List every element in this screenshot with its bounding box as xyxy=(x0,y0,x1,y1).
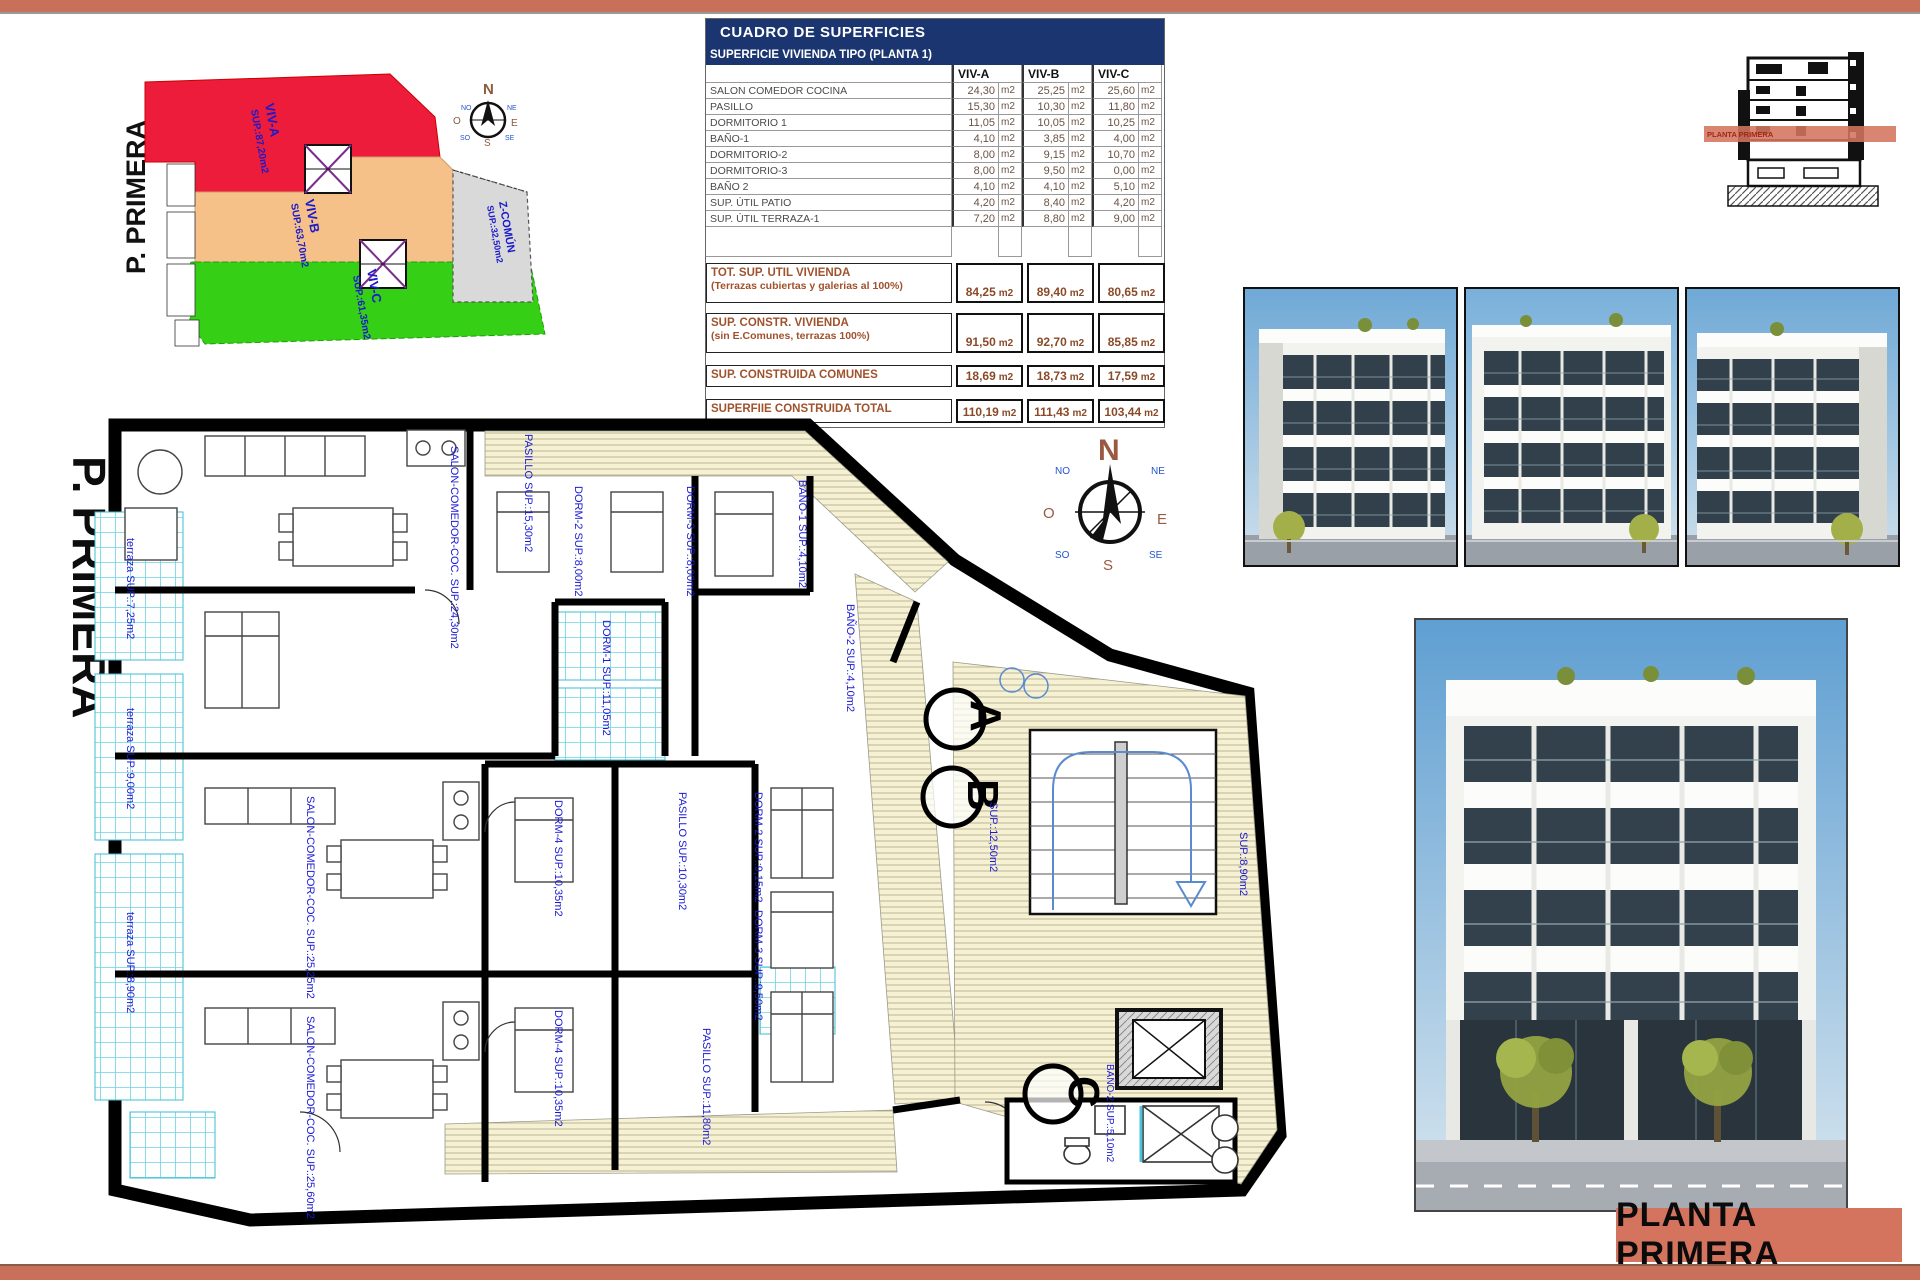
cell-value: 11,05 xyxy=(952,115,999,131)
key-compass-n: N xyxy=(483,81,494,98)
cell-value: 4,00 xyxy=(1092,131,1139,147)
cell-value: 11,80 xyxy=(1092,99,1139,115)
section-marker-c: C xyxy=(1059,1076,1108,1108)
key-compass-so: SO xyxy=(460,135,471,142)
cell-value: 8,40 xyxy=(1022,195,1069,211)
row-label: DORMITORIO-2 xyxy=(706,147,952,163)
elevator xyxy=(1117,1010,1221,1088)
summary-value: 18,69m2 xyxy=(956,365,1023,387)
cell-value: 4,10 xyxy=(952,179,999,195)
summary-value: 80,65m2 xyxy=(1098,263,1165,303)
room-label: BAÑO-1 SUP.:4,10m2 xyxy=(796,480,809,588)
cell-unit: m2 xyxy=(1069,83,1092,99)
compass-so: SO xyxy=(1055,550,1070,561)
col-viv-b: VIV-B xyxy=(1022,65,1092,83)
row-label: DORMITORIO 1 xyxy=(706,115,952,131)
cell-unit: m2 xyxy=(999,179,1022,195)
cell-unit: m2 xyxy=(999,99,1022,115)
cell-unit: m2 xyxy=(1069,99,1092,115)
key-compass-o: O xyxy=(453,116,461,127)
cell-value: 25,60 xyxy=(1092,83,1139,99)
table-title: CUADRO DE SUPERFICIES xyxy=(706,19,1164,45)
cell-value: 24,30 xyxy=(952,83,999,99)
row-label: SALON COMEDOR COCINA xyxy=(706,83,952,99)
cell-value: 15,30 xyxy=(952,99,999,115)
cell-value: 10,25 xyxy=(1092,115,1139,131)
room-label: SALON-COMEDOR-COC. SUP.:25,60m2 xyxy=(304,1016,316,1219)
bottom-accent-bar xyxy=(0,1264,1920,1280)
cell-unit: m2 xyxy=(1069,179,1092,195)
row-label: SUP. ÚTIL PATIO xyxy=(706,195,952,211)
cell-unit: m2 xyxy=(1139,163,1162,179)
compass-no: NO xyxy=(1055,466,1070,477)
summary-value: 84,25m2 xyxy=(956,263,1023,303)
sheet-title-block: PLANTA PRIMERA xyxy=(1616,1208,1902,1262)
col-viv-a: VIV-A xyxy=(952,65,1022,83)
cell-unit: m2 xyxy=(999,147,1022,163)
cell-unit: m2 xyxy=(1069,131,1092,147)
summary-row: TOT. SUP. UTIL VIVIENDA (Terrazas cubier… xyxy=(706,263,1164,303)
cell-unit: m2 xyxy=(1139,147,1162,163)
room-label: SUP.:12,50m2 xyxy=(987,802,999,872)
section-band-label: PLANTA PRIMERA xyxy=(1707,130,1774,139)
cell-value: 10,05 xyxy=(1022,115,1069,131)
cell-unit: m2 xyxy=(1139,83,1162,99)
cell-unit: m2 xyxy=(999,211,1022,227)
key-compass-no: NO xyxy=(461,105,472,112)
compass-e: E xyxy=(1157,511,1167,528)
table-row: SALON COMEDOR COCINA 24,30m2 25,25m2 25,… xyxy=(706,83,1164,99)
cell-value: 10,70 xyxy=(1092,147,1139,163)
key-plan-compass: N NO NE O E SO SE S xyxy=(453,81,518,149)
summary-label-main: TOT. SUP. UTIL VIVIENDA xyxy=(711,267,850,279)
summary-label-sub: (Terrazas cubiertas y galerias al 100%) xyxy=(711,280,947,293)
building-render-photo-large xyxy=(1414,618,1848,1212)
row-label: BAÑO 2 xyxy=(706,179,952,195)
summary-label: SUP. CONSTRUIDA COMUNES xyxy=(706,365,952,387)
row-label: BAÑO-1 xyxy=(706,131,952,147)
cell-value: 9,00 xyxy=(1092,211,1139,227)
table-column-header-row: VIV-A VIV-B VIV-C xyxy=(706,65,1164,83)
cell-value: 8,80 xyxy=(1022,211,1069,227)
compass-ne: NE xyxy=(1151,466,1165,477)
cell-unit: m2 xyxy=(1069,195,1092,211)
room-label: DORM-2 SUP.:8,00m2 xyxy=(572,486,584,596)
room-label: SALON-COMEDOR-COC. SUP.:24,30m2 xyxy=(448,446,460,649)
render-3-art xyxy=(1687,289,1898,565)
cell-unit: m2 xyxy=(1069,147,1092,163)
room-label: terraza SUP.:7,25m2 xyxy=(124,538,136,639)
room-label: DORM-2 SUP.:9,15m2 xyxy=(752,792,764,902)
table-row: SUP. ÚTIL PATIO 4,20m2 8,40m2 4,20m2 xyxy=(706,195,1164,211)
table-row: BAÑO-1 4,10m2 3,85m2 4,00m2 xyxy=(706,131,1164,147)
compass-s: S xyxy=(1103,557,1113,574)
cell-unit: m2 xyxy=(1139,179,1162,195)
cell-unit: m2 xyxy=(1069,163,1092,179)
table-row: SUP. ÚTIL TERRAZA-1 7,20m2 8,80m2 9,00m2 xyxy=(706,211,1164,227)
cell-unit: m2 xyxy=(999,195,1022,211)
key-compass-se: SE xyxy=(505,135,515,142)
cell-unit: m2 xyxy=(999,115,1022,131)
room-label: DORM-1 SUP.:11,05m2 xyxy=(600,620,612,736)
summary-label-sub: (sin E.Comunes, terrazas 100%) xyxy=(711,330,947,343)
building-render-photo-2 xyxy=(1464,287,1679,567)
cell-unit: m2 xyxy=(1139,99,1162,115)
cell-value: 3,85 xyxy=(1022,131,1069,147)
summary-row: SUP. CONSTRUIDA COMUNES 18,69m2 18,73m2 … xyxy=(706,365,1164,387)
cell-value: 8,00 xyxy=(952,163,999,179)
row-label: SUP. ÚTIL TERRAZA-1 xyxy=(706,211,952,227)
cell-unit: m2 xyxy=(1069,115,1092,131)
room-label: PASILLO SUP.:15,30m2 xyxy=(522,434,534,552)
cell-value: 0,00 xyxy=(1092,163,1139,179)
room-label: BAÑO-2 SUP.:4,10m2 xyxy=(844,604,857,712)
cell-value: 4,20 xyxy=(1092,195,1139,211)
room-label: SUP.:8,90m2 xyxy=(1237,832,1249,896)
room-label: DORM-4 SUP.:10,35m2 xyxy=(552,1010,564,1127)
building-render-photo-3 xyxy=(1685,287,1900,567)
table-spacer-row xyxy=(706,227,1164,257)
summary-value: 92,70m2 xyxy=(1027,313,1094,353)
cell-value: 9,15 xyxy=(1022,147,1069,163)
cell-value: 8,00 xyxy=(952,147,999,163)
render-large-art xyxy=(1416,620,1846,1210)
cell-value: 25,25 xyxy=(1022,83,1069,99)
cell-value: 5,10 xyxy=(1092,179,1139,195)
room-label: PASILLO SUP.:10,30m2 xyxy=(676,792,688,910)
table-row: BAÑO 2 4,10m2 4,10m2 5,10m2 xyxy=(706,179,1164,195)
cell-value: 4,10 xyxy=(1022,179,1069,195)
key-compass-s: S xyxy=(484,138,491,149)
room-label: BAÑO-2 SUP.:5,10m2 xyxy=(1104,1064,1117,1163)
table-row: DORMITORIO 1 11,05m2 10,05m2 10,25m2 xyxy=(706,115,1164,131)
cell-unit: m2 xyxy=(1139,115,1162,131)
col-viv-c: VIV-C xyxy=(1092,65,1162,83)
key-plan: P. PRIMERA VIV-A SUP.: xyxy=(105,62,565,362)
room-label: DORM-3 SUP.:9,50m2 xyxy=(752,910,764,1020)
table-row: DORMITORIO-3 8,00m2 9,50m2 0,00m2 xyxy=(706,163,1164,179)
section-marker-a: A xyxy=(961,700,1010,732)
floor-plan: P. PRIMERA xyxy=(55,412,1300,1230)
top-accent-bar xyxy=(0,0,1920,14)
cell-value: 4,10 xyxy=(952,131,999,147)
table-subtitle: SUPERFICIE VIVIENDA TIPO (PLANTA 1) xyxy=(706,45,1164,65)
key-compass-e: E xyxy=(511,118,518,129)
table-row: DORMITORIO-2 8,00m2 9,15m2 10,70m2 xyxy=(706,147,1164,163)
compass-n: N xyxy=(1098,434,1120,467)
summary-value: 89,40m2 xyxy=(1027,263,1094,303)
room-label: SALON-COMEDOR-COC. SUP.:25,25m2 xyxy=(304,796,316,999)
cell-unit: m2 xyxy=(1139,131,1162,147)
row-label: PASILLO xyxy=(706,99,952,115)
cell-value: 9,50 xyxy=(1022,163,1069,179)
room-label: PASILLO SUP.:11,80m2 xyxy=(700,1028,712,1145)
summary-label: TOT. SUP. UTIL VIVIENDA (Terrazas cubier… xyxy=(706,263,952,303)
key-compass-ne: NE xyxy=(507,105,517,112)
plan-compass: N NO NE O E SO SE S xyxy=(1043,434,1167,574)
cell-unit: m2 xyxy=(1139,195,1162,211)
surfaces-table: CUADRO DE SUPERFICIES SUPERFICIE VIVIEND… xyxy=(705,18,1165,428)
sheet-title: PLANTA PRIMERA xyxy=(1616,1196,1902,1274)
cell-unit: m2 xyxy=(1069,211,1092,227)
table-row: PASILLO 15,30m2 10,30m2 11,80m2 xyxy=(706,99,1164,115)
cell-value: 10,30 xyxy=(1022,99,1069,115)
compass-se: SE xyxy=(1149,550,1163,561)
summary-row: SUP. CONSTR. VIVIENDA (sin E.Comunes, te… xyxy=(706,313,1164,353)
room-label: DORM-4 SUP.:10,35m2 xyxy=(552,800,564,917)
cell-unit: m2 xyxy=(999,83,1022,99)
cell-value: 4,20 xyxy=(952,195,999,211)
summary-value: 18,73m2 xyxy=(1027,365,1094,387)
compass-o: O xyxy=(1043,505,1055,522)
summary-value: 91,50m2 xyxy=(956,313,1023,353)
room-label: DORM-3 SUP.:8,00m2 xyxy=(684,486,696,596)
summary-value: 17,59m2 xyxy=(1098,365,1165,387)
cell-unit: m2 xyxy=(999,131,1022,147)
building-section-diagram: PLANTA PRIMERA xyxy=(1700,40,1900,210)
summary-label-main: SUP. CONSTRUIDA COMUNES xyxy=(711,369,878,381)
summary-value: 85,85m2 xyxy=(1098,313,1165,353)
plan-sheet: P. PRIMERA VIV-A SUP.: xyxy=(0,0,1920,1280)
summary-label-main: SUP. CONSTR. VIVIENDA xyxy=(711,317,849,329)
room-label: terraza SUP.:8,90m2 xyxy=(124,912,136,1013)
cell-unit: m2 xyxy=(1139,211,1162,227)
room-label: terraza SUP.:9,00m2 xyxy=(124,708,136,809)
cell-value: 7,20 xyxy=(952,211,999,227)
cell-unit: m2 xyxy=(999,163,1022,179)
summary-label: SUP. CONSTR. VIVIENDA (sin E.Comunes, te… xyxy=(706,313,952,353)
render-2-art xyxy=(1466,289,1677,565)
row-label: DORMITORIO-3 xyxy=(706,163,952,179)
